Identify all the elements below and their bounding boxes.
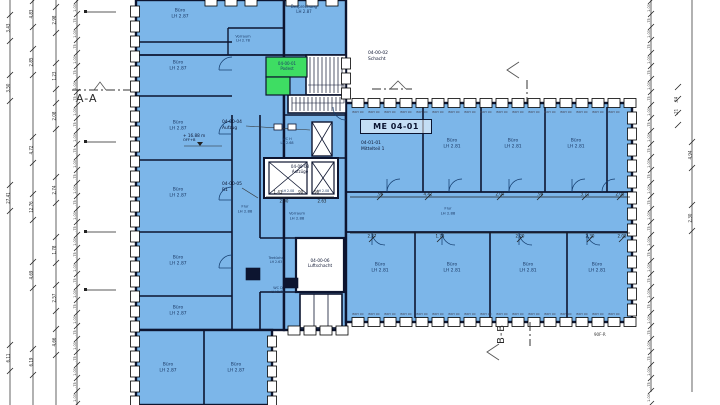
window-sill-label: BRH 90 — [592, 312, 603, 316]
room-label-vorraum-core: Vorraum LH 2.88 — [289, 211, 305, 220]
dimension-label: 2.08 — [618, 234, 627, 239]
dimension-label: .21 — [674, 98, 679, 126]
dimension-label: 2.30 — [688, 204, 693, 232]
room-label-flur-right: Flur LH 2.88 — [441, 206, 456, 215]
room-lh: LH 2.87 — [169, 193, 186, 199]
room-label: BüroLH 2.87 — [169, 120, 186, 131]
window-sill-label: BRH 90 — [576, 110, 587, 114]
window-sill-label: BRH 90 — [448, 312, 459, 316]
dimension-label: 12.76 — [29, 193, 34, 221]
elevation-marker: + 16.88 m OFF+B — [183, 133, 205, 143]
room-lh: LH 2.78 — [271, 290, 284, 294]
room-label: BüroLH 2.81 — [567, 138, 584, 149]
aufzuege-name: Aufzüge — [291, 169, 309, 174]
window-sill-label: BRH 90 — [400, 110, 411, 114]
dimension-label: 2.08 — [52, 102, 57, 130]
window-sill-label: BRH 90 — [496, 312, 507, 316]
room-lh: LH 2.68 — [280, 141, 293, 145]
room-label: BüroLH 2.81 — [443, 262, 460, 273]
room-lh: LH 2.88 — [238, 209, 253, 214]
room-lh: LH 2.88 — [289, 216, 305, 221]
room-lh: LH 2.78 — [235, 39, 250, 43]
dimension-label: 3.50 — [6, 74, 11, 102]
aufzug-name: Aufzug — [222, 126, 242, 132]
room-label-luftschacht: 04-00-06 Luftschacht — [308, 258, 332, 269]
sheet-note: 90F-R — [594, 332, 606, 337]
elevation-ref: OFF+B — [183, 138, 205, 143]
window-sill-label: BRH 90 — [512, 312, 523, 316]
room-lh: LH 2.87 — [227, 368, 244, 374]
dimension-label: 6.19 — [29, 348, 34, 376]
window-sill-label: BRH 90 — [496, 110, 507, 114]
window-sill-label: BRH 90 — [432, 110, 443, 114]
luft-name: Luftschacht — [308, 263, 332, 268]
schacht-id: 04-00-02 — [368, 51, 388, 57]
room-label-flur-left: Flur LH 2.88 — [238, 204, 253, 213]
room-lh: LH 2.81 — [443, 268, 460, 274]
window-sill-label: BRH 90 — [512, 110, 523, 114]
window-sill-label: BRH 90 — [608, 110, 619, 114]
room-lh: LH 2.88 — [441, 211, 456, 216]
floor-plan-canvas — [0, 0, 720, 405]
room-lh: LH 2.81 — [588, 268, 605, 274]
room-lh: LH 2.63 — [269, 260, 284, 264]
dimension-label: 2.27 — [368, 234, 377, 239]
window-sill-label: BRH 90 — [400, 312, 411, 316]
dimension-label: 4.42 — [424, 192, 433, 197]
room-lh: LH 2.87 — [171, 14, 188, 20]
dimension-label: 2.30 — [586, 234, 595, 239]
room-label: BüroLH 2.87 — [169, 255, 186, 266]
room-label: BüroLH 2.87 — [169, 60, 186, 71]
window-sill-label: BRH 90 — [384, 110, 395, 114]
dimension-label: 2.20 — [516, 234, 525, 239]
room-lh: LH 2.81 — [443, 144, 460, 150]
dimension-label: 3.71 — [581, 192, 590, 197]
dimension-label: 4.83 — [29, 0, 34, 28]
room-label-teekueche: Teeküche LH 2.63 — [269, 256, 284, 264]
window-sill-label: BRH 90 — [576, 312, 587, 316]
room-label: BüroLH 2.81 — [443, 138, 460, 149]
room-lh: LH 2.87 — [169, 66, 186, 72]
mittelteil-id: 04-01-01 — [361, 141, 384, 147]
room-id-mittelteil: 04-01-01 Mittelteil 1 — [361, 141, 384, 152]
window-sill-label: BRH 90 — [416, 110, 427, 114]
dimension-label: 1.43 — [274, 190, 283, 195]
section-marker-bb-label: B-B — [496, 324, 507, 344]
window-sill-label: BRH 90 — [480, 312, 491, 316]
room-label-vorraum-top: Vorraum LH 2.78 — [235, 35, 250, 44]
dimension-label: .90 — [313, 190, 319, 195]
window-sill-label: BRH 90 — [560, 312, 571, 316]
room-label: BüroLH 2.87 — [169, 187, 186, 198]
dimension-label: 3.43 — [6, 14, 11, 42]
window-sill-label: BRH 90 — [464, 312, 475, 316]
podest-name: Podest — [278, 66, 296, 71]
room-lh: LH 2.81 — [519, 268, 536, 274]
aufzug-id: 04-00-04 — [222, 120, 242, 126]
dimension-label: .90 — [297, 190, 303, 195]
window-sill-label: BRH 90 — [608, 312, 619, 316]
room-label-buero-topleft: Büro LH 2.87 — [171, 8, 188, 19]
dimension-label: 2.74 — [52, 176, 57, 204]
dimension-label: 2.08 — [616, 192, 625, 197]
window-sill-label: BRH 90 — [464, 110, 475, 114]
window-sill-label: BRH 90 — [560, 110, 571, 114]
dimension-label: 4.94 — [688, 141, 693, 169]
dimension-label: 4.66 — [52, 328, 57, 356]
room-label-wcd: WC D LH 2.78 — [271, 286, 284, 295]
window-sill-label: BRH 90 — [448, 110, 459, 114]
room-label: BüroLH 2.81 — [519, 262, 536, 273]
room-lh: LH 2.87 — [159, 368, 176, 374]
schacht-name: Schacht — [368, 57, 388, 63]
room-id-aufzug: 04-00-04 Aufzug — [222, 120, 242, 131]
floor-plan-sheet: A-A B-B 04-00-02 Schacht 04-00-04 Aufzug… — [0, 0, 720, 405]
room-label: BüroLH 2.87 — [169, 305, 186, 316]
room-lh: LH 2.81 — [567, 144, 584, 150]
room-label: BüroLH 2.87 — [227, 362, 244, 373]
dimension-label: 4.72 — [29, 136, 34, 164]
dimension-label: 2.04 — [496, 192, 505, 197]
dimension-label: .98 — [537, 192, 543, 197]
dimension-label: .96 — [377, 192, 383, 197]
dimension-module-label: 1.00 — [647, 384, 651, 405]
room-label-besprechung: Besprechung LH 2.87 — [291, 4, 317, 14]
dimension-label: 2.98 — [52, 6, 57, 34]
lift-lh-label-1: LH 2.08 — [282, 189, 294, 193]
r1-name: R1 — [222, 188, 242, 194]
window-sill-label: BRH 90 — [528, 110, 539, 114]
room-label-aufzuege: 04-00-03 Aufzüge — [291, 164, 309, 174]
window-sill-label: BRH 90 — [384, 312, 395, 316]
dimension-label: 1.73 — [436, 234, 445, 239]
window-sill-label: BRH 90 — [592, 110, 603, 114]
window-sill-label: BRH 90 — [528, 312, 539, 316]
dimension-module-label: 1.00 — [73, 384, 77, 405]
room-lh: LH 2.87 — [291, 9, 317, 14]
room-label-wch: WC H LH 2.68 — [280, 137, 293, 146]
window-sill-label: BRH 90 — [368, 312, 379, 316]
room-id-r1: 04-00-05 R1 — [222, 182, 242, 193]
room-lh: LH 2.87 — [169, 126, 186, 132]
room-label-podest: 04-00-01 Podest — [278, 61, 296, 71]
dimension-label: 2.57 — [52, 284, 57, 312]
dimension-label: 1.78 — [52, 236, 57, 264]
room-label: BüroLH 2.81 — [504, 138, 521, 149]
r1-id: 04-00-05 — [222, 182, 242, 188]
window-sill-label: BRH 90 — [544, 312, 555, 316]
me-unit-badge: ME 04-01 — [360, 119, 432, 134]
dimension-label: 2.63 — [318, 199, 327, 204]
dimension-label: 2.00 — [280, 199, 289, 204]
dimension-label: 27.41 — [6, 184, 11, 212]
room-lh: LH 2.81 — [371, 268, 388, 274]
window-sill-label: BRH 90 — [432, 312, 443, 316]
room-lh: LH 2.87 — [169, 311, 186, 317]
room-label: BüroLH 2.81 — [371, 262, 388, 273]
dimension-label: 2.85 — [29, 48, 34, 76]
dimension-label: 6.11 — [6, 344, 11, 372]
window-sill-label: BRH 90 — [368, 110, 379, 114]
window-sill-label: BRH 90 — [544, 110, 555, 114]
section-marker-aa-label: A-A — [76, 92, 98, 105]
room-lh: LH 2.81 — [504, 144, 521, 150]
room-label: BüroLH 2.87 — [159, 362, 176, 373]
dimension-label: 1.23 — [52, 62, 57, 90]
window-sill-label: BRH 90 — [352, 110, 363, 114]
window-sill-label: BRH 90 — [416, 312, 427, 316]
window-sill-label: BRH 90 — [480, 110, 491, 114]
room-lh: LH 2.87 — [169, 261, 186, 267]
dimension-label: 4.69 — [29, 261, 34, 289]
mittelteil-name: Mittelteil 1 — [361, 147, 384, 153]
window-sill-label: BRH 90 — [352, 312, 363, 316]
room-label: BüroLH 2.81 — [588, 262, 605, 273]
room-id-schacht: 04-00-02 Schacht — [368, 51, 388, 62]
